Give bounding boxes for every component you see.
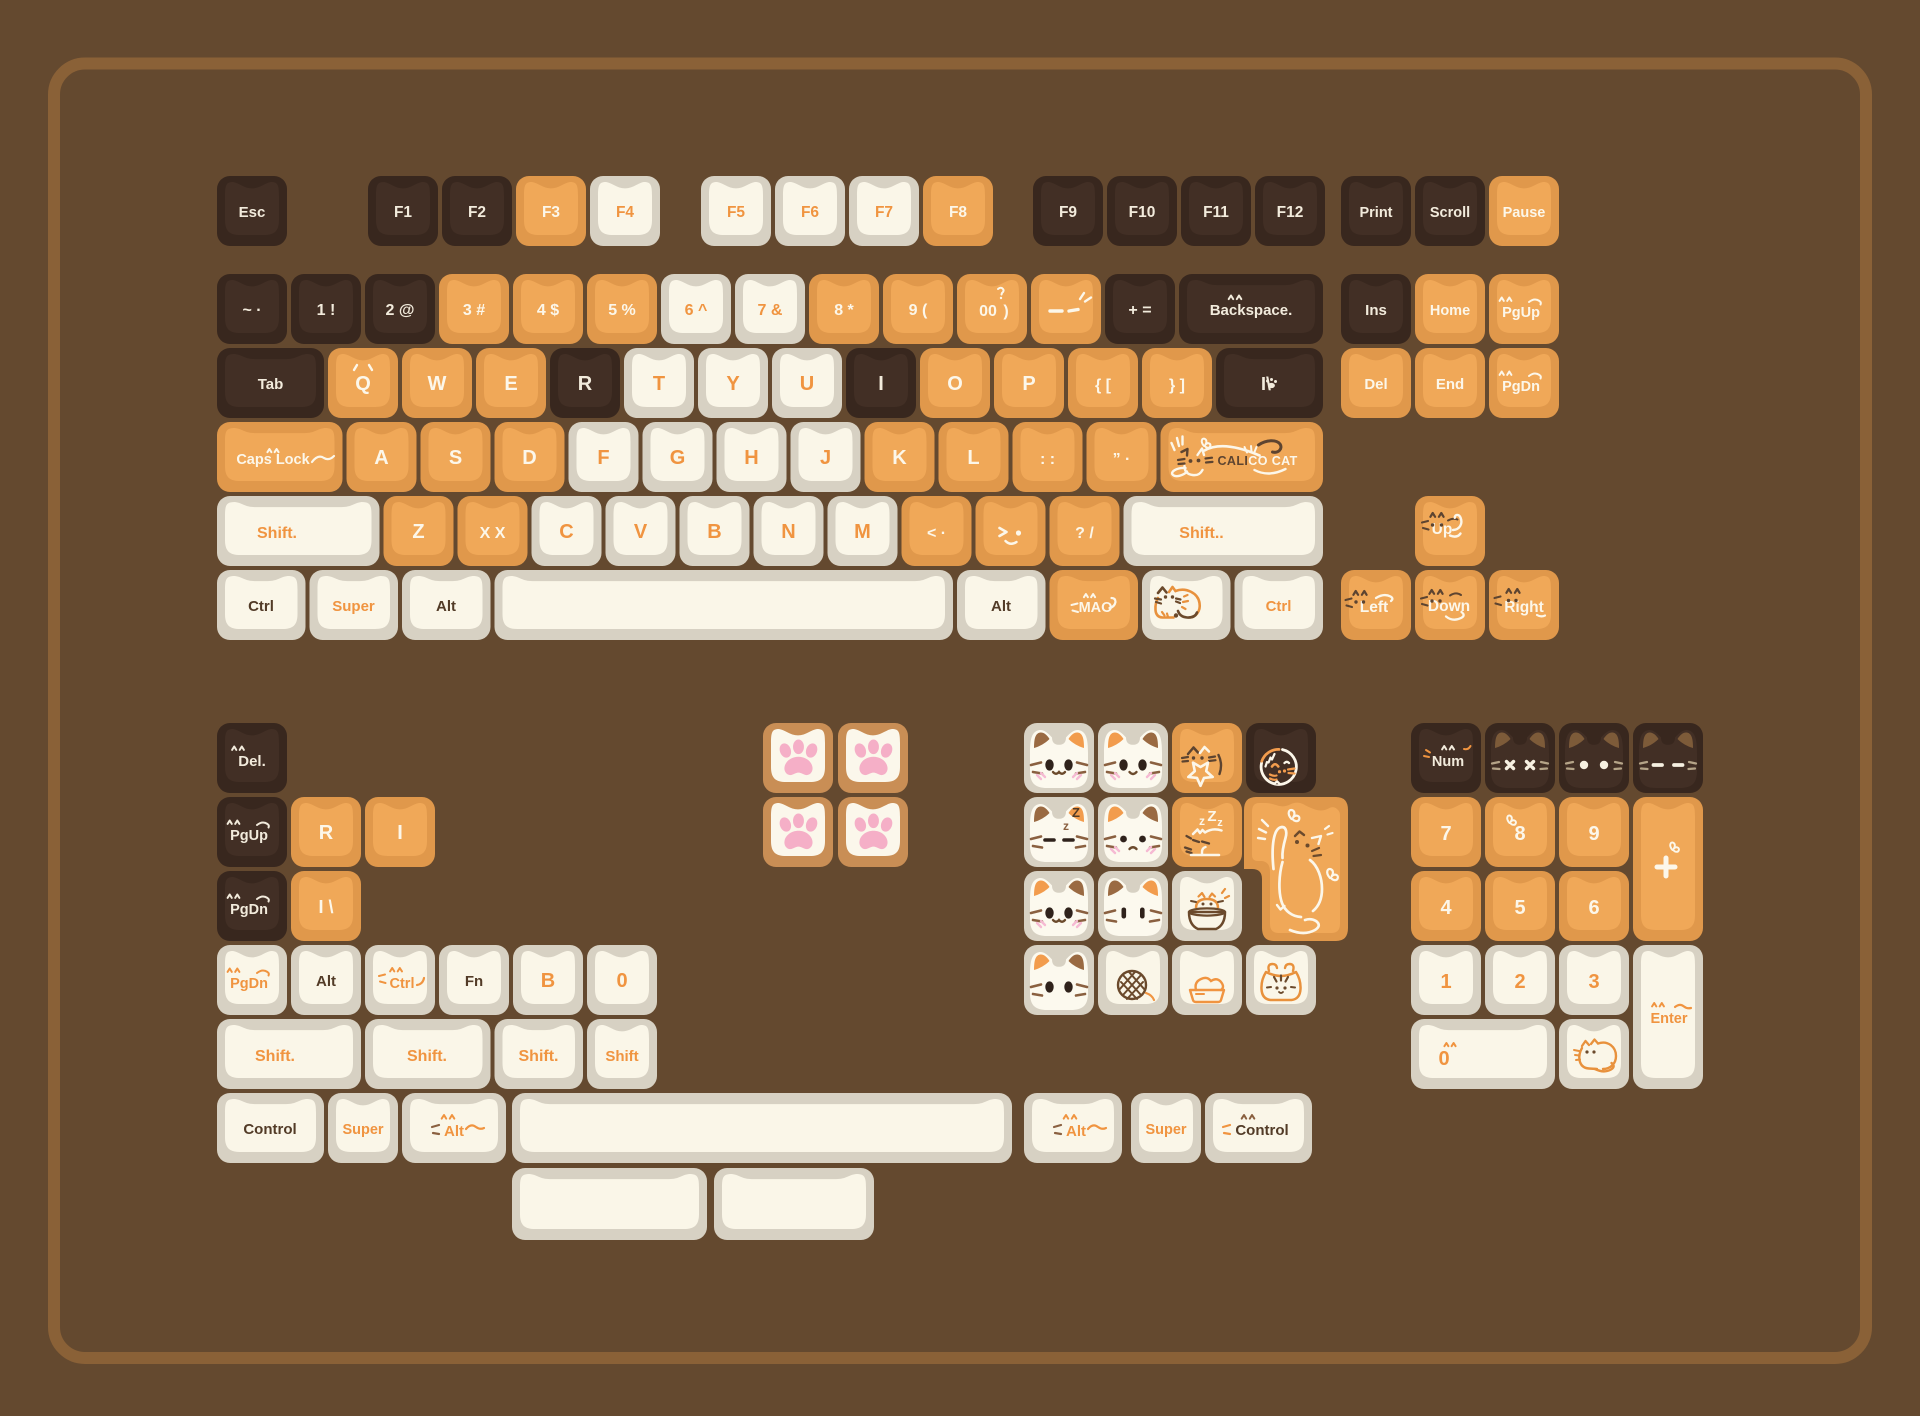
svg-text:H: H bbox=[744, 447, 758, 469]
svg-text:Q: Q bbox=[355, 373, 371, 395]
svg-text:PgUp: PgUp bbox=[230, 828, 268, 844]
svg-text:Super: Super bbox=[1145, 1122, 1186, 1138]
svg-text:E: E bbox=[504, 373, 517, 395]
svg-text:7: 7 bbox=[1440, 823, 1451, 845]
svg-text:F5: F5 bbox=[727, 204, 745, 221]
svg-text:3: 3 bbox=[1588, 971, 1599, 993]
svg-text:” ·: ” · bbox=[1113, 451, 1131, 468]
svg-text:{ [: { [ bbox=[1095, 377, 1112, 394]
svg-text:O: O bbox=[947, 373, 963, 395]
svg-text:9 (: 9 ( bbox=[909, 302, 928, 319]
svg-text:Shift: Shift bbox=[605, 1048, 638, 1065]
svg-text:N: N bbox=[781, 521, 795, 543]
svg-text:U: U bbox=[800, 373, 814, 395]
svg-text:F10: F10 bbox=[1129, 204, 1156, 221]
svg-text:Super: Super bbox=[332, 598, 375, 615]
svg-text:V: V bbox=[634, 521, 648, 543]
svg-text:Print: Print bbox=[1359, 205, 1392, 221]
svg-text:Alt: Alt bbox=[444, 1123, 464, 1140]
svg-text:End: End bbox=[1436, 376, 1464, 393]
svg-text:Enter: Enter bbox=[1650, 1011, 1687, 1027]
svg-text:R: R bbox=[319, 822, 334, 844]
svg-text:F9: F9 bbox=[1059, 204, 1077, 221]
svg-text:A: A bbox=[374, 447, 388, 469]
svg-text:Control: Control bbox=[243, 1121, 296, 1138]
svg-text:Scroll: Scroll bbox=[1430, 205, 1470, 221]
svg-text:Caps Lock: Caps Lock bbox=[236, 452, 310, 468]
svg-text:2: 2 bbox=[1514, 971, 1525, 993]
svg-text:Shift.: Shift. bbox=[257, 525, 297, 542]
svg-text:Del.: Del. bbox=[238, 753, 266, 770]
svg-text:D: D bbox=[522, 447, 536, 469]
svg-text:< ·: < · bbox=[927, 525, 946, 542]
svg-text:Alt: Alt bbox=[991, 598, 1011, 615]
svg-text:Shift..: Shift.. bbox=[1179, 525, 1223, 542]
svg-text:1: 1 bbox=[1440, 971, 1451, 993]
svg-text:Ctrl: Ctrl bbox=[248, 598, 274, 615]
svg-text:F4: F4 bbox=[616, 204, 634, 221]
svg-text:Down: Down bbox=[1428, 598, 1470, 615]
svg-text:6: 6 bbox=[1588, 897, 1599, 919]
svg-text:I: I bbox=[397, 822, 403, 844]
svg-text:I \: I \ bbox=[318, 897, 333, 917]
svg-text:Esc: Esc bbox=[239, 204, 266, 221]
svg-text:6 ^: 6 ^ bbox=[685, 302, 708, 319]
svg-text:F8: F8 bbox=[949, 204, 967, 221]
svg-text:Tab: Tab bbox=[258, 376, 284, 393]
svg-text:PgDn: PgDn bbox=[1502, 379, 1540, 395]
svg-text:} ]: } ] bbox=[1169, 377, 1185, 394]
svg-text:7 &: 7 & bbox=[758, 302, 783, 319]
svg-text:L: L bbox=[967, 447, 979, 469]
svg-text:F11: F11 bbox=[1203, 204, 1229, 221]
svg-text:Y: Y bbox=[726, 373, 740, 395]
svg-text:8 *: 8 * bbox=[834, 302, 854, 319]
svg-text:8: 8 bbox=[1514, 823, 1525, 845]
svg-text:PgUp: PgUp bbox=[1502, 305, 1540, 321]
svg-text:G: G bbox=[670, 447, 686, 469]
svg-text:9: 9 bbox=[1588, 823, 1599, 845]
svg-text:F1: F1 bbox=[394, 204, 412, 221]
svg-text:z: z bbox=[1063, 819, 1069, 833]
svg-text:F3: F3 bbox=[542, 204, 560, 221]
svg-text:F6: F6 bbox=[801, 204, 819, 221]
svg-text:Ins: Ins bbox=[1365, 302, 1387, 319]
svg-text:S: S bbox=[449, 447, 462, 469]
svg-text:F12: F12 bbox=[1277, 204, 1304, 221]
svg-text:Del: Del bbox=[1364, 376, 1387, 393]
svg-text:P: P bbox=[1022, 373, 1035, 395]
svg-text:Control: Control bbox=[1235, 1122, 1288, 1139]
svg-text:Shift.: Shift. bbox=[255, 1048, 295, 1065]
svg-text:CALICO CAT: CALICO CAT bbox=[1218, 454, 1298, 468]
svg-text:Fn: Fn bbox=[465, 973, 483, 990]
svg-text:2 @: 2 @ bbox=[386, 302, 415, 319]
svg-text:T: T bbox=[653, 373, 665, 395]
svg-text:0: 0 bbox=[1438, 1048, 1449, 1070]
svg-text:PgDn: PgDn bbox=[230, 902, 268, 918]
svg-text:3 #: 3 # bbox=[463, 302, 485, 319]
svg-text:K: K bbox=[892, 447, 907, 469]
svg-text:Right: Right bbox=[1504, 599, 1544, 616]
svg-text:M: M bbox=[854, 521, 871, 543]
svg-text:Pause: Pause bbox=[1503, 205, 1546, 221]
svg-text:Alt: Alt bbox=[436, 598, 456, 615]
svg-text:Home: Home bbox=[1430, 303, 1470, 319]
svg-text:MAO: MAO bbox=[1079, 600, 1113, 616]
svg-text:Ctrl: Ctrl bbox=[1266, 598, 1292, 615]
svg-text:X X: X X bbox=[480, 525, 506, 542]
svg-text:R: R bbox=[578, 373, 593, 395]
svg-text:1 !: 1 ! bbox=[317, 302, 336, 319]
svg-text:W: W bbox=[428, 373, 447, 395]
svg-text:I: I bbox=[878, 373, 884, 395]
svg-text:F: F bbox=[597, 447, 609, 469]
svg-text:Alt: Alt bbox=[1066, 1123, 1086, 1140]
svg-text:Shift.: Shift. bbox=[407, 1048, 447, 1065]
svg-text:+ =: + = bbox=[1128, 302, 1151, 319]
svg-text:PgDn: PgDn bbox=[230, 976, 268, 992]
svg-text:: :: : : bbox=[1040, 451, 1055, 468]
svg-text:00: 00 bbox=[979, 303, 997, 320]
svg-text:Num: Num bbox=[1432, 754, 1464, 770]
svg-text:): ) bbox=[1003, 303, 1008, 320]
svg-text:0: 0 bbox=[616, 970, 627, 992]
svg-text:F2: F2 bbox=[468, 204, 486, 221]
svg-text:Shift.: Shift. bbox=[519, 1048, 559, 1065]
svg-text:5: 5 bbox=[1514, 897, 1525, 919]
svg-text:Super: Super bbox=[342, 1122, 383, 1138]
svg-text:Ctrl: Ctrl bbox=[390, 976, 415, 992]
svg-text:J: J bbox=[820, 447, 831, 469]
svg-text:z: z bbox=[1217, 817, 1223, 829]
svg-text:? /: ? / bbox=[1075, 525, 1094, 542]
svg-text:F7: F7 bbox=[875, 204, 893, 221]
svg-text:Alt: Alt bbox=[316, 973, 336, 990]
svg-text:4: 4 bbox=[1440, 897, 1452, 919]
svg-text:B: B bbox=[541, 970, 555, 992]
svg-text:C: C bbox=[559, 521, 573, 543]
svg-text:B: B bbox=[707, 521, 721, 543]
svg-text:~ ·: ~ · bbox=[242, 302, 261, 319]
svg-text:Z: Z bbox=[412, 521, 424, 543]
svg-text:Backspace.: Backspace. bbox=[1210, 302, 1293, 319]
svg-text:Z: Z bbox=[1072, 805, 1080, 820]
svg-text:4 $: 4 $ bbox=[537, 302, 559, 319]
svg-text:5 %: 5 % bbox=[608, 302, 636, 319]
svg-text:Z: Z bbox=[1207, 808, 1216, 825]
svg-text:z: z bbox=[1199, 814, 1205, 828]
